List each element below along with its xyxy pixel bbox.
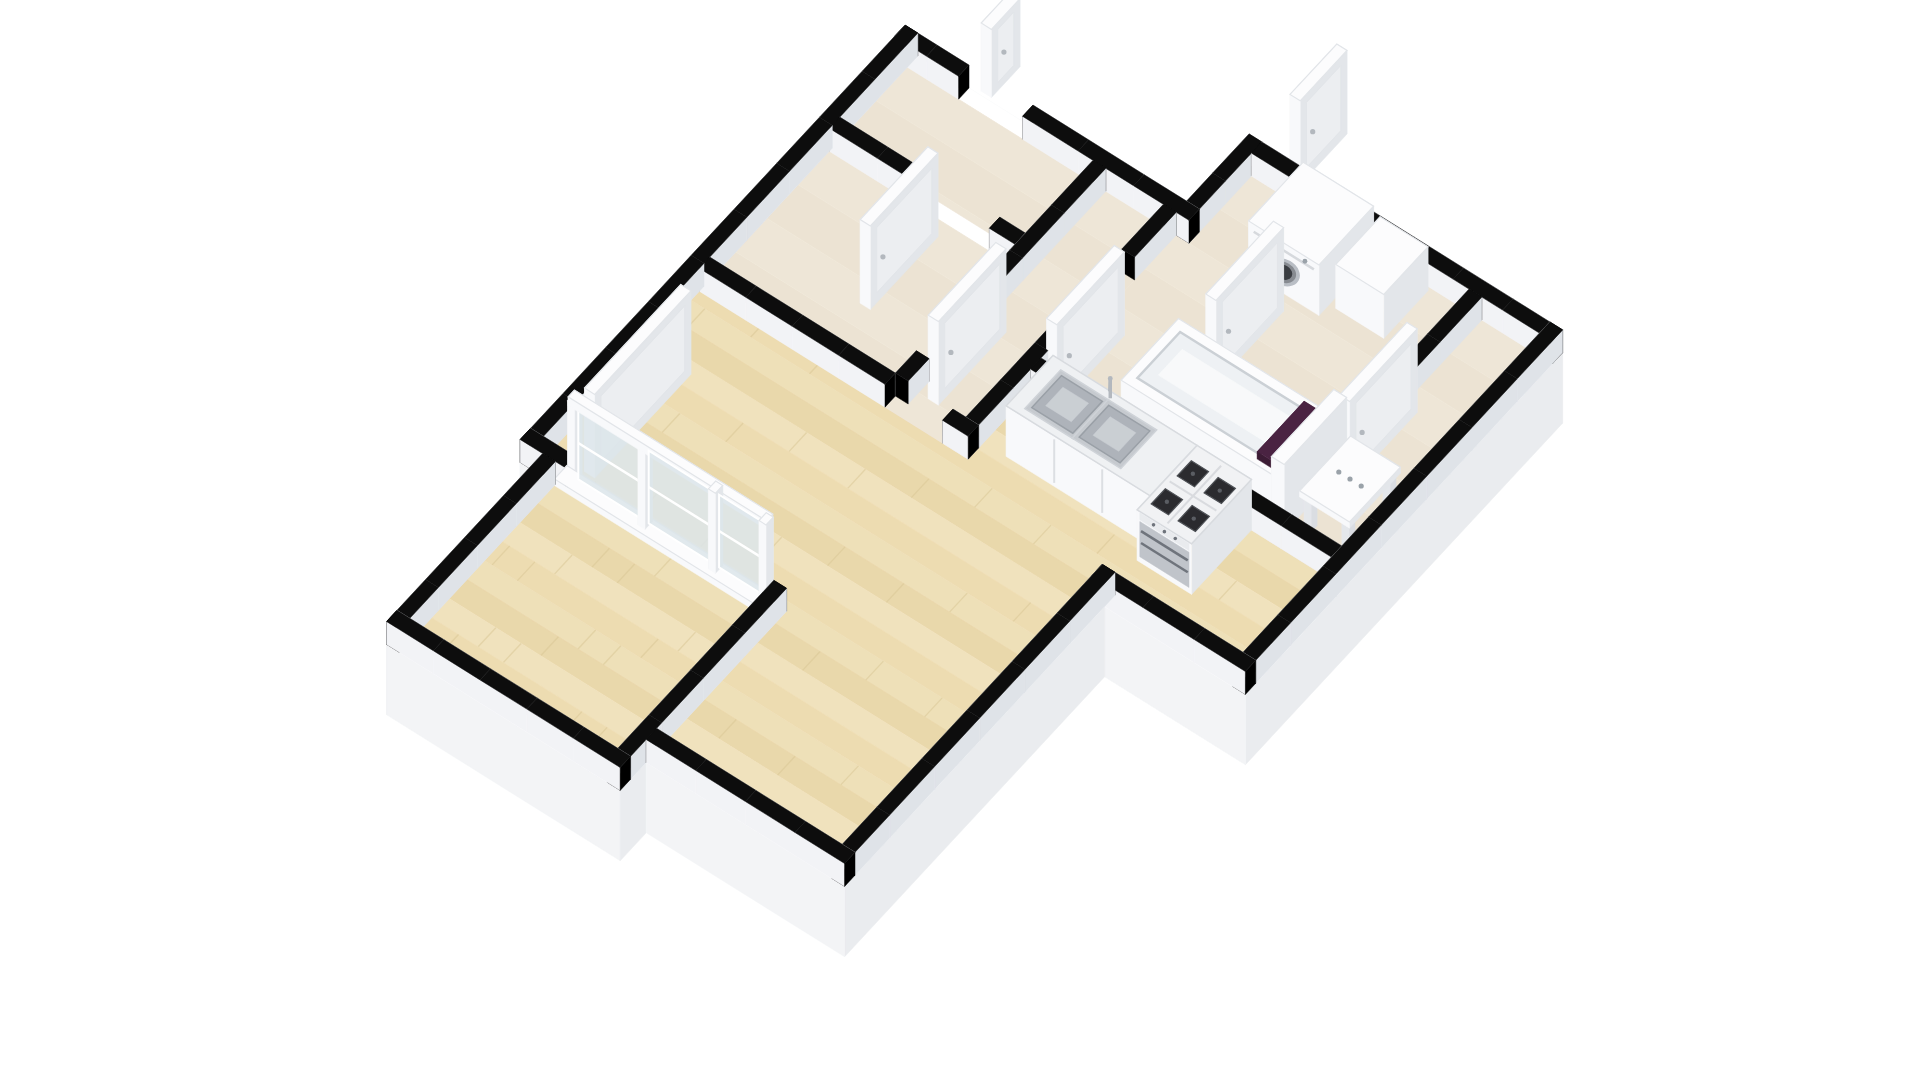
entry-door — [981, 0, 1020, 98]
floor-plan-page — [0, 0, 1920, 1080]
utility-door — [1290, 44, 1347, 184]
floor-plan-3d — [0, 0, 1920, 1080]
